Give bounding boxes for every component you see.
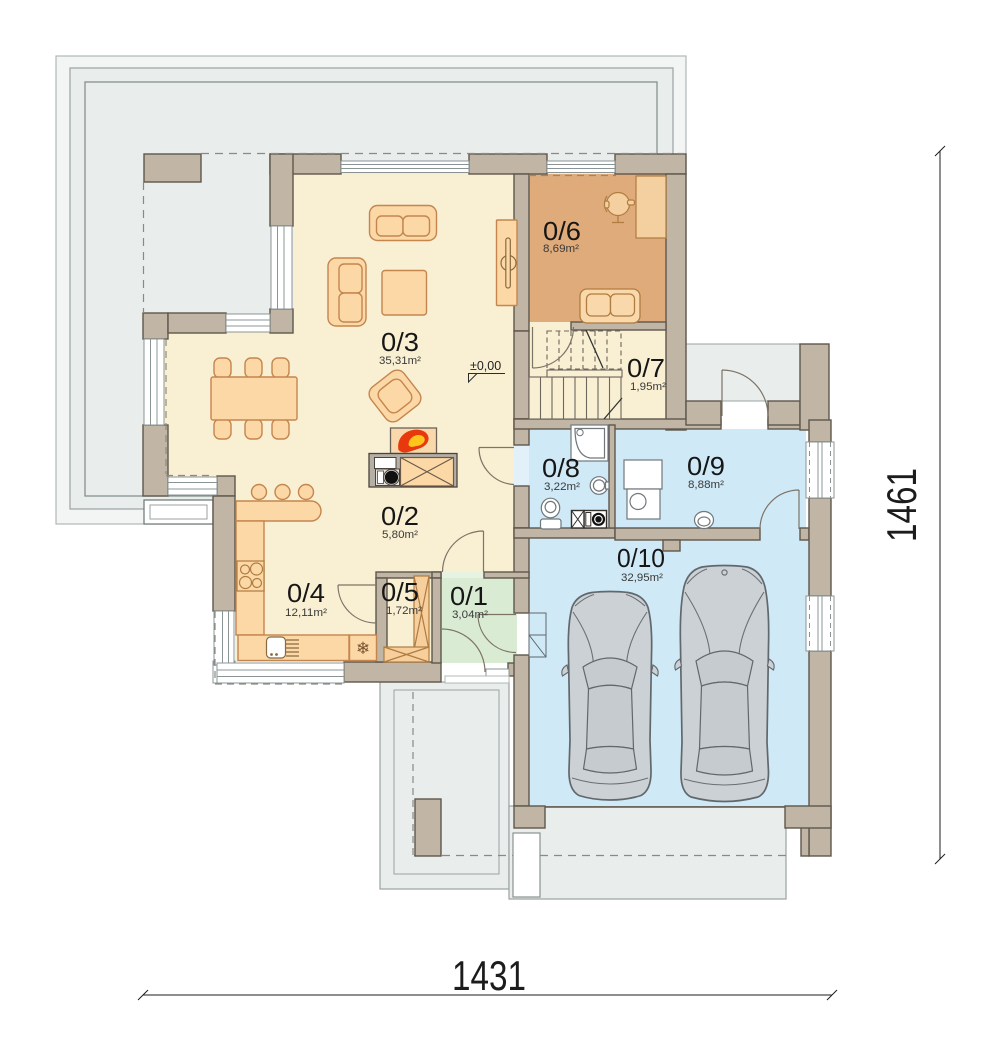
svg-text:35,31m²: 35,31m² — [379, 355, 421, 367]
svg-text:5,80m²: 5,80m² — [382, 529, 418, 541]
svg-text:0/4: 0/4 — [287, 578, 325, 608]
svg-text:32,95m²: 32,95m² — [621, 572, 663, 584]
svg-text:0/7: 0/7 — [627, 353, 665, 383]
svg-text:8,88m²: 8,88m² — [688, 479, 724, 491]
svg-text:3,22m²: 3,22m² — [544, 481, 580, 493]
svg-text:0/3: 0/3 — [381, 327, 419, 357]
svg-text:0/5: 0/5 — [381, 577, 419, 607]
svg-text:3,04m²: 3,04m² — [452, 609, 488, 621]
svg-text:0/1: 0/1 — [450, 581, 488, 611]
svg-text:0/9: 0/9 — [687, 451, 725, 481]
svg-text:±0,00: ±0,00 — [470, 359, 501, 373]
svg-text:1431: 1431 — [452, 952, 526, 999]
svg-text:0/2: 0/2 — [381, 501, 419, 531]
svg-text:❄: ❄ — [356, 639, 370, 658]
svg-text:1,72m²: 1,72m² — [386, 605, 422, 617]
svg-text:8,69m²: 8,69m² — [543, 243, 579, 255]
svg-text:12,11m²: 12,11m² — [285, 607, 327, 619]
svg-text:1461: 1461 — [878, 468, 925, 542]
svg-text:0/8: 0/8 — [542, 453, 580, 483]
svg-text:0/10: 0/10 — [617, 543, 665, 573]
svg-text:1,95m²: 1,95m² — [630, 381, 666, 393]
svg-text:0/6: 0/6 — [543, 216, 581, 246]
